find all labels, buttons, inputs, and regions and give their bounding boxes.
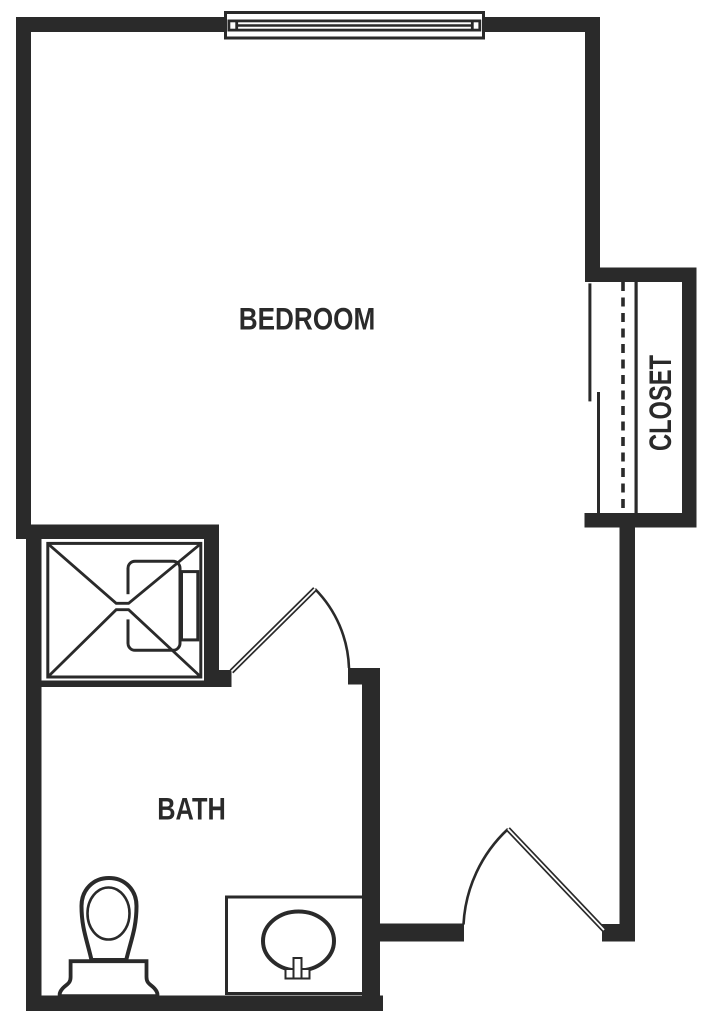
svg-text:BATH: BATH (157, 791, 226, 827)
svg-text:BEDROOM: BEDROOM (239, 301, 376, 337)
svg-text:CLOSET: CLOSET (642, 355, 678, 451)
